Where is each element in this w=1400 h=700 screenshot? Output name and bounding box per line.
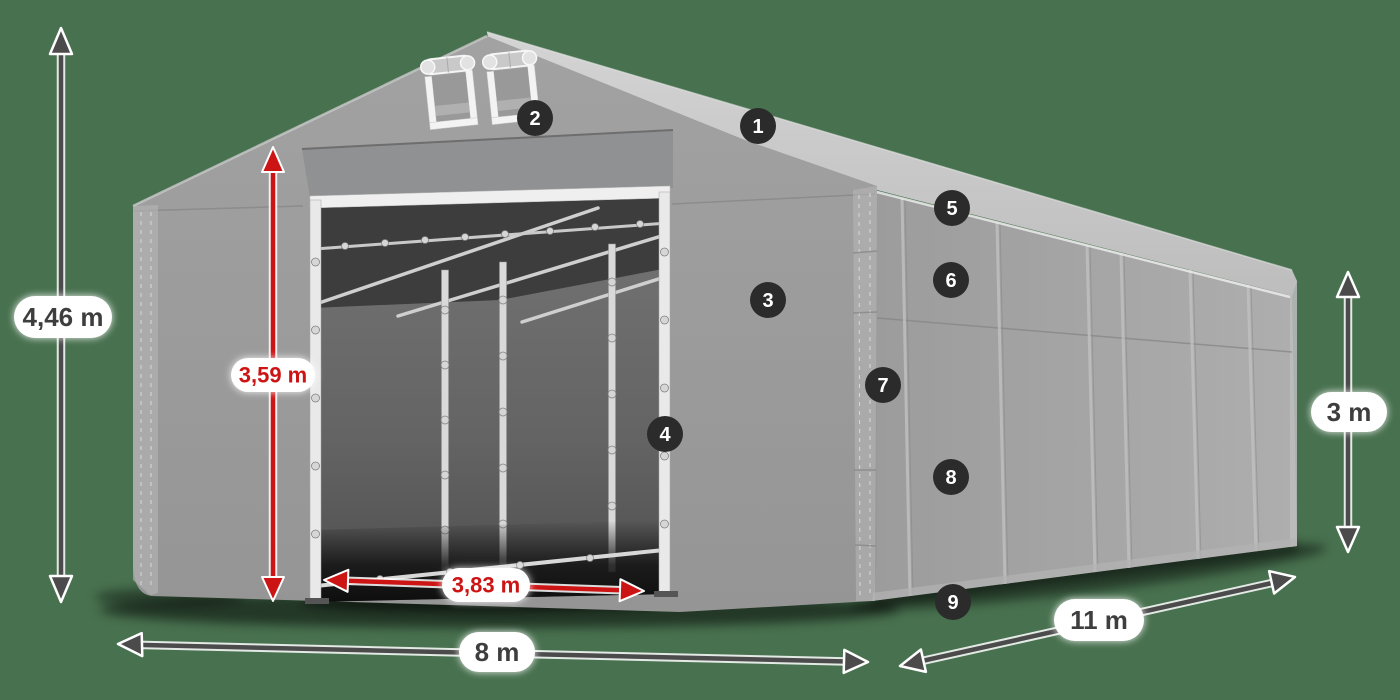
side-height-label: 3 m xyxy=(1327,397,1372,427)
marker-4-number: 4 xyxy=(659,424,671,446)
marker-5-number: 5 xyxy=(946,198,957,220)
front-left-corner-strip xyxy=(133,205,158,595)
marker-3: 3 xyxy=(750,282,786,318)
tent-illustration xyxy=(133,32,1297,612)
marker-5: 5 xyxy=(934,190,970,226)
marker-9-number: 9 xyxy=(947,592,958,614)
tent-dimension-diagram: 1 2 3 4 5 6 7 8 9 4,46 m 3,59 m xyxy=(0,0,1400,700)
marker-6-number: 6 xyxy=(945,270,956,292)
total-height-label: 4,46 m xyxy=(23,302,104,332)
dimension-side-height: 3 m xyxy=(1311,272,1387,552)
dimension-front-width: 8 m xyxy=(118,632,868,673)
marker-2-number: 2 xyxy=(529,108,540,130)
front-width-label: 8 m xyxy=(475,637,520,667)
marker-8: 8 xyxy=(933,459,969,495)
marker-6: 6 xyxy=(933,262,969,298)
door-interior xyxy=(312,188,668,602)
side-length-label: 11 m xyxy=(1070,605,1128,635)
marker-7: 7 xyxy=(865,367,901,403)
door-height-label: 3,59 m xyxy=(239,363,308,388)
marker-9: 9 xyxy=(935,584,971,620)
marker-1: 1 xyxy=(740,108,776,144)
marker-3-number: 3 xyxy=(762,290,773,312)
side-wall-back-edge xyxy=(1290,272,1297,547)
marker-8-number: 8 xyxy=(945,467,956,489)
marker-4: 4 xyxy=(647,416,683,452)
dimension-total-height: 4,46 m xyxy=(14,28,112,602)
door-width-label: 3,83 m xyxy=(452,573,521,598)
gable-vent-left xyxy=(420,55,481,130)
marker-1-number: 1 xyxy=(752,116,763,138)
diagram-canvas: 1 2 3 4 5 6 7 8 9 4,46 m 3,59 m xyxy=(0,0,1400,700)
marker-2: 2 xyxy=(517,100,553,136)
marker-7-number: 7 xyxy=(877,375,888,397)
